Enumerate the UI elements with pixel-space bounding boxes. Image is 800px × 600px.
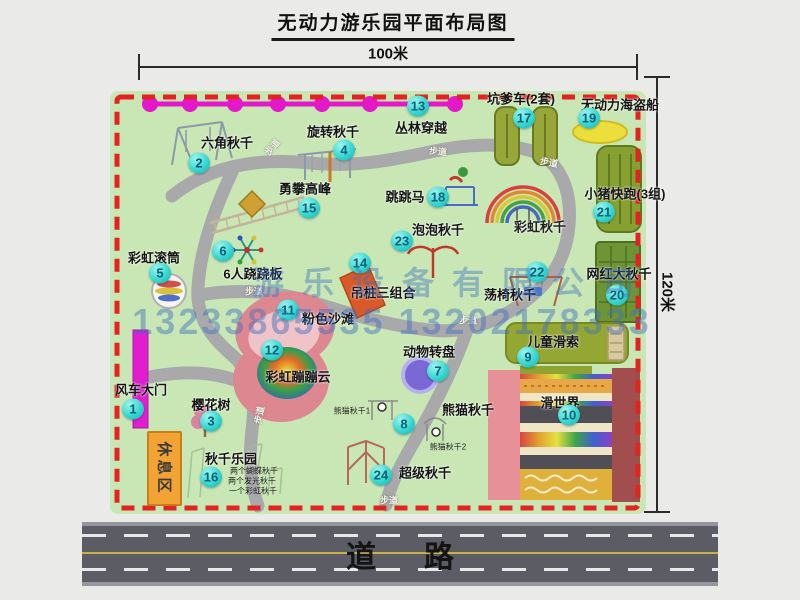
location-badge-17: 17 (513, 108, 535, 129)
location-label-12: 彩虹蹦蹦云 (265, 367, 330, 386)
sub-label-1: 熊猫秋千1 (334, 406, 370, 417)
location-badge-13: 13 (407, 96, 429, 117)
location-label-20: 网红大秋千 (586, 264, 651, 283)
location-badge-15: 15 (298, 198, 320, 219)
location-badge-16: 16 (200, 467, 222, 488)
location-label-7: 动物转盘 (403, 342, 455, 361)
location-badge-9: 9 (517, 347, 539, 368)
location-badge-12: 12 (261, 340, 283, 361)
location-badge-2: 2 (188, 153, 210, 174)
walkway-label-6: 步道 (380, 494, 398, 507)
location-badge-10: 10 (558, 405, 580, 426)
location-label-21: 小猪快跑(3组) (585, 184, 666, 203)
location-badge-23: 23 (391, 231, 413, 252)
location-badge-14: 14 (349, 253, 371, 274)
road-label: 道路 (298, 532, 502, 576)
location-label-9: 儿童滑索 (527, 332, 579, 351)
sub-label-5: 一个彩虹秋千 (229, 486, 277, 497)
walkway-label-1: 步道 (428, 144, 447, 159)
location-badge-5: 5 (149, 263, 171, 284)
location-label-23: 泡泡秋千 (412, 220, 464, 239)
rest-area-box: 休息区 (147, 431, 182, 506)
location-label-22: 荡椅秋千 (484, 285, 536, 304)
location-badge-8: 8 (393, 414, 415, 435)
location-label-1: 风车大门 (115, 380, 167, 399)
location-badge-21: 21 (593, 202, 615, 223)
location-label-2: 六角秋千 (201, 133, 253, 152)
sub-label-0: 彩虹秋千 (514, 217, 566, 236)
location-badge-1: 1 (122, 399, 144, 420)
location-badge-3: 3 (200, 411, 222, 432)
road-band: 道路 (82, 522, 718, 586)
sub-label-2: 熊猫秋千2 (430, 442, 466, 453)
location-label-11: 粉色沙滩 (302, 309, 354, 328)
location-label-17: 坑爹车(2套) (487, 89, 555, 108)
walkway-label-3: 步道 (245, 285, 263, 298)
location-badge-24: 24 (370, 465, 392, 486)
location-badge-6: 6 (212, 241, 234, 262)
location-badge-4: 4 (333, 140, 355, 161)
walkway-label-4: 步道 (459, 314, 477, 327)
location-label-15: 勇攀高峰 (279, 179, 331, 198)
location-badge-11: 11 (277, 300, 299, 321)
location-label-4: 旋转秋千 (307, 122, 359, 141)
location-label-24: 超级秋千 (399, 463, 451, 482)
location-label-6: 6人跷跷板 (223, 264, 282, 283)
location-badge-22: 22 (526, 262, 548, 283)
park-layout-map: 无动力游乐园平面布局图 100米 120米 (0, 0, 800, 600)
location-label-14: 吊桩三组合 (350, 283, 415, 302)
rest-area-label: 休息区 (154, 441, 175, 495)
location-badge-19: 19 (578, 108, 600, 129)
location-label-13: 丛林穿越 (395, 118, 447, 137)
location-badge-7: 7 (427, 361, 449, 382)
location-label-8: 熊猫秋千 (442, 400, 494, 419)
slide-world-shape (488, 366, 640, 502)
location-badge-20: 20 (606, 285, 628, 306)
location-badge-18: 18 (427, 187, 449, 208)
location-label-18: 跳跳马 (385, 187, 424, 206)
